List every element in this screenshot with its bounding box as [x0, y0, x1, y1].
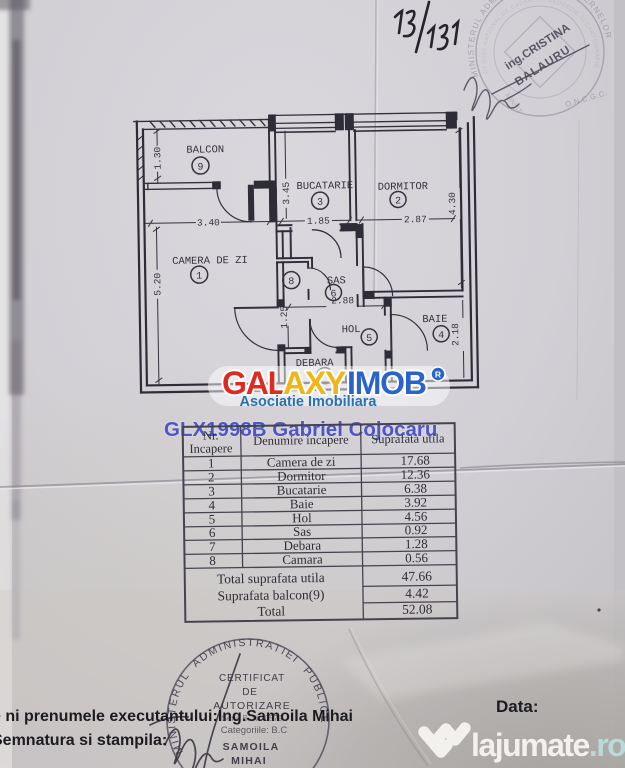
svg-text:MIHAI: MIHAI: [231, 755, 267, 767]
svg-text:Suprafata utila: Suprafata utila: [371, 431, 445, 446]
svg-text:9: 9: [197, 163, 203, 174]
svg-text:4.30: 4.30: [447, 192, 458, 215]
svg-text:3.92: 3.92: [404, 495, 427, 510]
svg-text:Baie: Baie: [290, 496, 314, 511]
svg-text:SAMOILA: SAMOILA: [223, 741, 280, 753]
svg-text:3: 3: [208, 483, 215, 498]
svg-text:DE: DE: [242, 687, 258, 698]
svg-text:R: R: [435, 370, 441, 380]
svg-text:Semnatura si stampila:: Semnatura si stampila:: [0, 732, 167, 749]
svg-text:Denumire incapere: Denumire incapere: [253, 433, 349, 448]
svg-text:2.88: 2.88: [331, 295, 354, 306]
svg-text:e ni prenumele executantului:I: e ni prenumele executantului:Ing.Samoila…: [0, 708, 353, 725]
svg-text:Asociatie Imobiliara: Asociatie Imobiliara: [240, 394, 378, 410]
svg-text:2.87: 2.87: [404, 214, 427, 225]
svg-text:2: 2: [395, 196, 401, 207]
svg-text:DORMITOR: DORMITOR: [378, 181, 429, 194]
svg-text:8: 8: [288, 277, 294, 288]
svg-text:HOL: HOL: [342, 324, 361, 336]
svg-text:BAIE: BAIE: [422, 314, 447, 326]
svg-text:4.42: 4.42: [405, 585, 429, 600]
svg-text:CERTIFICAT: CERTIFICAT: [219, 673, 285, 684]
svg-text:5.20: 5.20: [152, 272, 163, 295]
svg-text:6: 6: [209, 525, 216, 540]
svg-text:8: 8: [209, 553, 216, 568]
svg-text:2: 2: [208, 469, 215, 484]
svg-text:1: 1: [208, 455, 215, 470]
svg-text:1.85: 1.85: [307, 216, 330, 227]
svg-text:52.08: 52.08: [402, 601, 433, 616]
svg-text:Categoriile: B.C: Categoriile: B.C: [221, 725, 288, 736]
svg-text:5: 5: [366, 334, 372, 345]
svg-text:47.66: 47.66: [401, 568, 432, 583]
svg-text:1: 1: [196, 272, 202, 283]
svg-text:BUCATARIE: BUCATARIE: [296, 180, 353, 193]
svg-text:1.30: 1.30: [152, 146, 163, 169]
svg-text:3.45: 3.45: [281, 181, 292, 204]
svg-text:Suprafata balcon(9): Suprafata balcon(9): [218, 587, 325, 603]
svg-text:CAMERA DE ZI: CAMERA DE ZI: [172, 255, 248, 268]
svg-text:lajumate.ro: lajumate.ro: [471, 727, 625, 763]
svg-text:Incapere: Incapere: [189, 441, 233, 456]
svg-text:1.25: 1.25: [279, 305, 290, 328]
svg-text:1.28: 1.28: [405, 536, 428, 551]
svg-text:Data:: Data:: [496, 697, 539, 716]
svg-text:4: 4: [438, 331, 444, 342]
svg-text:0.92: 0.92: [405, 522, 428, 537]
svg-text:7: 7: [209, 539, 216, 554]
svg-text:BALCON: BALCON: [186, 144, 224, 157]
svg-text:3.40: 3.40: [197, 217, 220, 228]
svg-text:Total: Total: [257, 603, 285, 618]
svg-text:Camara: Camara: [282, 551, 323, 567]
svg-text:6.38: 6.38: [404, 481, 427, 496]
svg-text:Total suprafata utila: Total suprafata utila: [217, 570, 325, 587]
svg-text:3: 3: [317, 198, 323, 209]
svg-text:2.18: 2.18: [450, 323, 461, 346]
svg-text:4: 4: [208, 497, 215, 512]
svg-text:0.56: 0.56: [405, 550, 428, 565]
svg-text:Bucatarie: Bucatarie: [277, 482, 327, 498]
svg-text:Sas: Sas: [293, 524, 311, 539]
